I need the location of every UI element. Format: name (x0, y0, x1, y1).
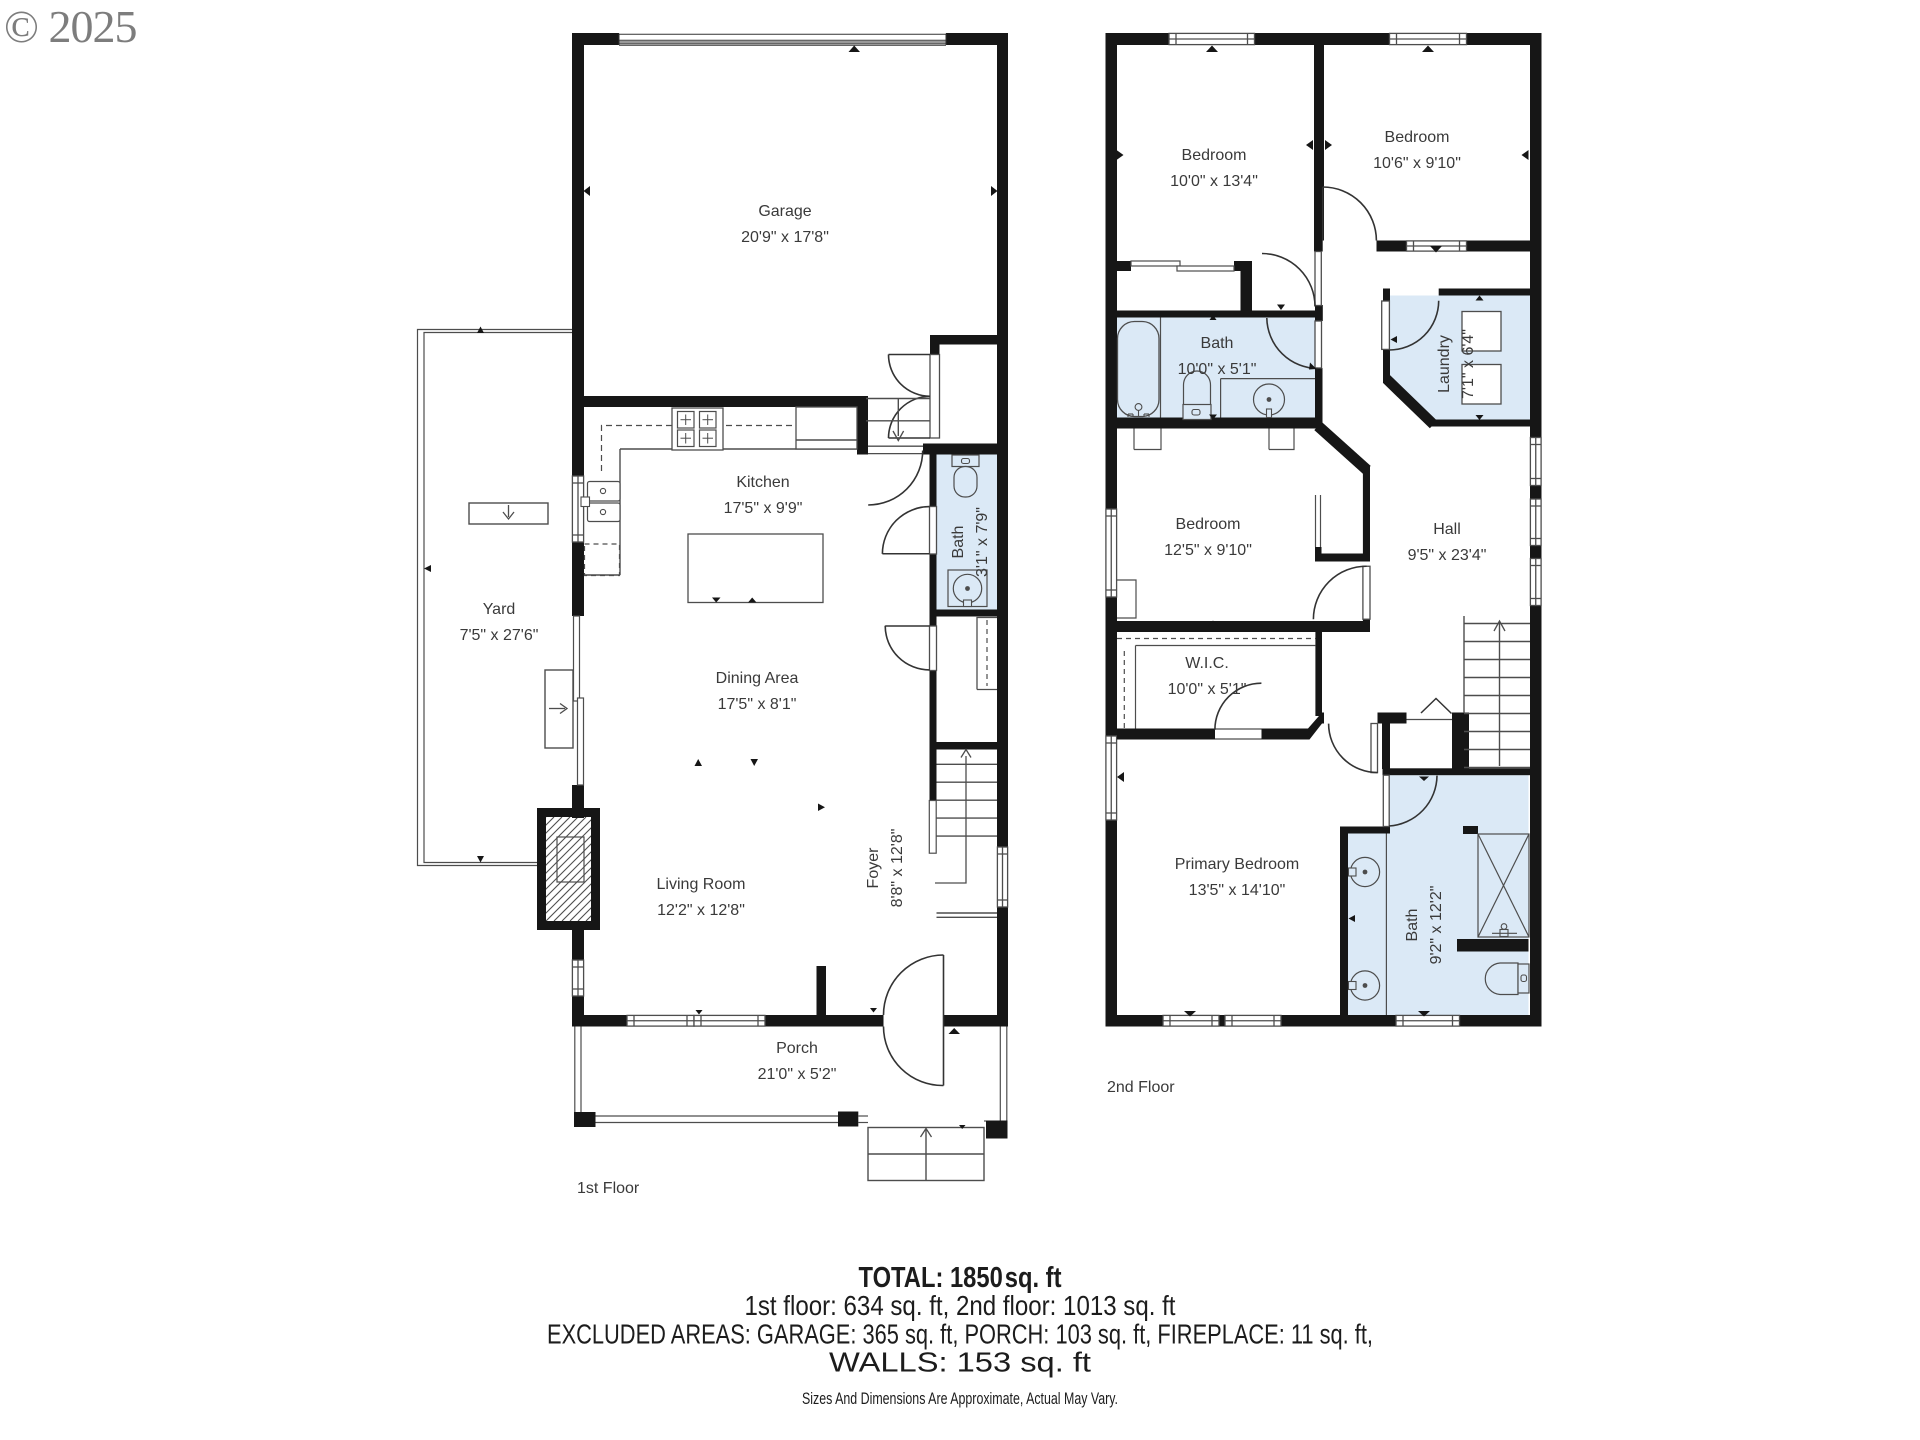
svg-text:12'2" x 12'8": 12'2" x 12'8" (657, 902, 745, 919)
svg-text:8'8" x 12'8": 8'8" x 12'8" (889, 829, 906, 908)
svg-text:17'5" x 8'1": 17'5" x 8'1" (718, 696, 797, 713)
svg-text:10'0" x 5'1": 10'0" x 5'1" (1168, 681, 1247, 698)
svg-text:Bedroom: Bedroom (1176, 516, 1241, 533)
svg-text:21'0" x 5'2": 21'0" x 5'2" (758, 1066, 837, 1083)
svg-text:3'1" x 7'9": 3'1" x 7'9" (974, 507, 991, 577)
svg-text:10'0" x 5'1": 10'0" x 5'1" (1178, 361, 1257, 378)
svg-text:Primary Bedroom: Primary Bedroom (1175, 856, 1299, 873)
svg-text:Yard: Yard (483, 601, 516, 618)
svg-text:Porch: Porch (776, 1040, 818, 1057)
svg-text:Living Room: Living Room (657, 876, 746, 893)
svg-text:10'6" x 9'10": 10'6" x 9'10" (1373, 155, 1461, 172)
svg-text:Bath: Bath (1404, 909, 1421, 942)
svg-text:Dining Area: Dining Area (716, 670, 799, 687)
svg-text:2nd Floor: 2nd Floor (1107, 1079, 1175, 1096)
svg-text:7'1" x 6'4": 7'1" x 6'4" (1460, 329, 1477, 399)
svg-text:1st Floor: 1st Floor (577, 1180, 640, 1197)
svg-text:17'5" x 9'9": 17'5" x 9'9" (724, 500, 803, 517)
svg-text:EXCLUDED AREAS: GARAGE: 365 sq: EXCLUDED AREAS: GARAGE: 365 sq. ft, PORC… (547, 1319, 1373, 1350)
svg-text:9'2" x 12'2": 9'2" x 12'2" (1428, 886, 1445, 965)
svg-text:1st floor: 634 sq. ft, 2nd flo: 1st floor: 634 sq. ft, 2nd floor: 1013 s… (745, 1290, 1176, 1321)
svg-text:WALLS: 153 sq. ft: WALLS: 153 sq. ft (829, 1347, 1091, 1378)
svg-text:© 2025: © 2025 (4, 1, 136, 52)
svg-text:Laundry: Laundry (1436, 335, 1453, 393)
svg-text:Garage: Garage (758, 203, 811, 220)
svg-text:13'5" x 14'10": 13'5" x 14'10" (1189, 882, 1286, 899)
svg-text:10'0" x 13'4": 10'0" x 13'4" (1170, 173, 1258, 190)
svg-text:Sizes And Dimensions Are Appro: Sizes And Dimensions Are Approximate, Ac… (802, 1390, 1118, 1408)
svg-text:12'5" x 9'10": 12'5" x 9'10" (1164, 542, 1252, 559)
svg-text:Hall: Hall (1433, 521, 1461, 538)
svg-text:Bedroom: Bedroom (1385, 129, 1450, 146)
svg-text:20'9" x 17'8": 20'9" x 17'8" (741, 229, 829, 246)
svg-text:9'5" x 23'4": 9'5" x 23'4" (1408, 547, 1487, 564)
svg-text:Bedroom: Bedroom (1182, 147, 1247, 164)
svg-text:7'5" x 27'6": 7'5" x 27'6" (460, 627, 539, 644)
svg-text:W.I.C.: W.I.C. (1185, 655, 1229, 672)
svg-text:Kitchen: Kitchen (736, 474, 789, 491)
svg-text:Bath: Bath (950, 526, 967, 559)
svg-text:Foyer: Foyer (865, 847, 882, 889)
svg-text:Bath: Bath (1201, 335, 1234, 352)
